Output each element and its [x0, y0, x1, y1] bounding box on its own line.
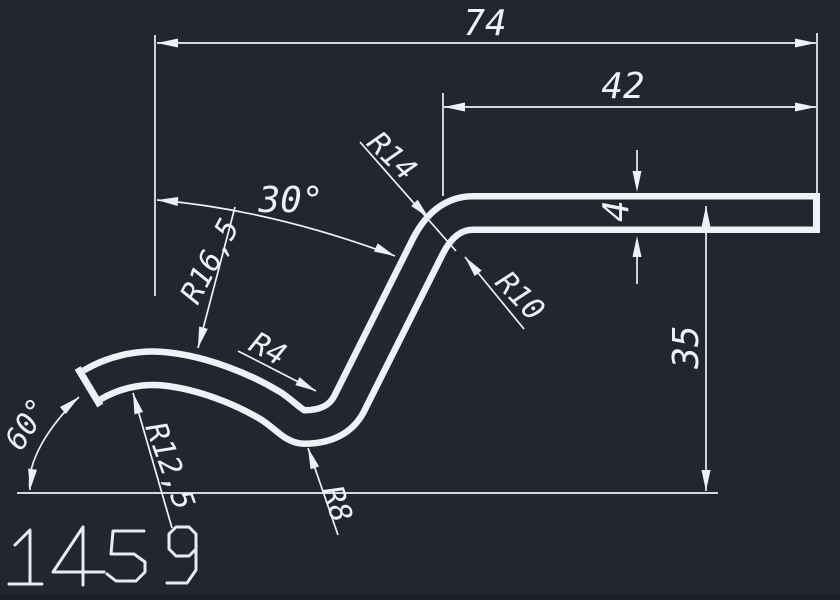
dim-label-30: 30° — [257, 180, 323, 221]
canvas-bottom-edge — [0, 593, 840, 600]
dim-label-4: 4 — [596, 200, 637, 222]
dim-label-74: 74 — [463, 3, 506, 44]
technical-drawing: 74 42 4 35 30° 60° R16,5 — [0, 0, 840, 600]
cad-canvas[interactable]: 74 42 4 35 30° 60° R16,5 — [0, 0, 840, 600]
dim-label-42: 42 — [601, 66, 644, 107]
dim-label-35: 35 — [666, 325, 707, 369]
